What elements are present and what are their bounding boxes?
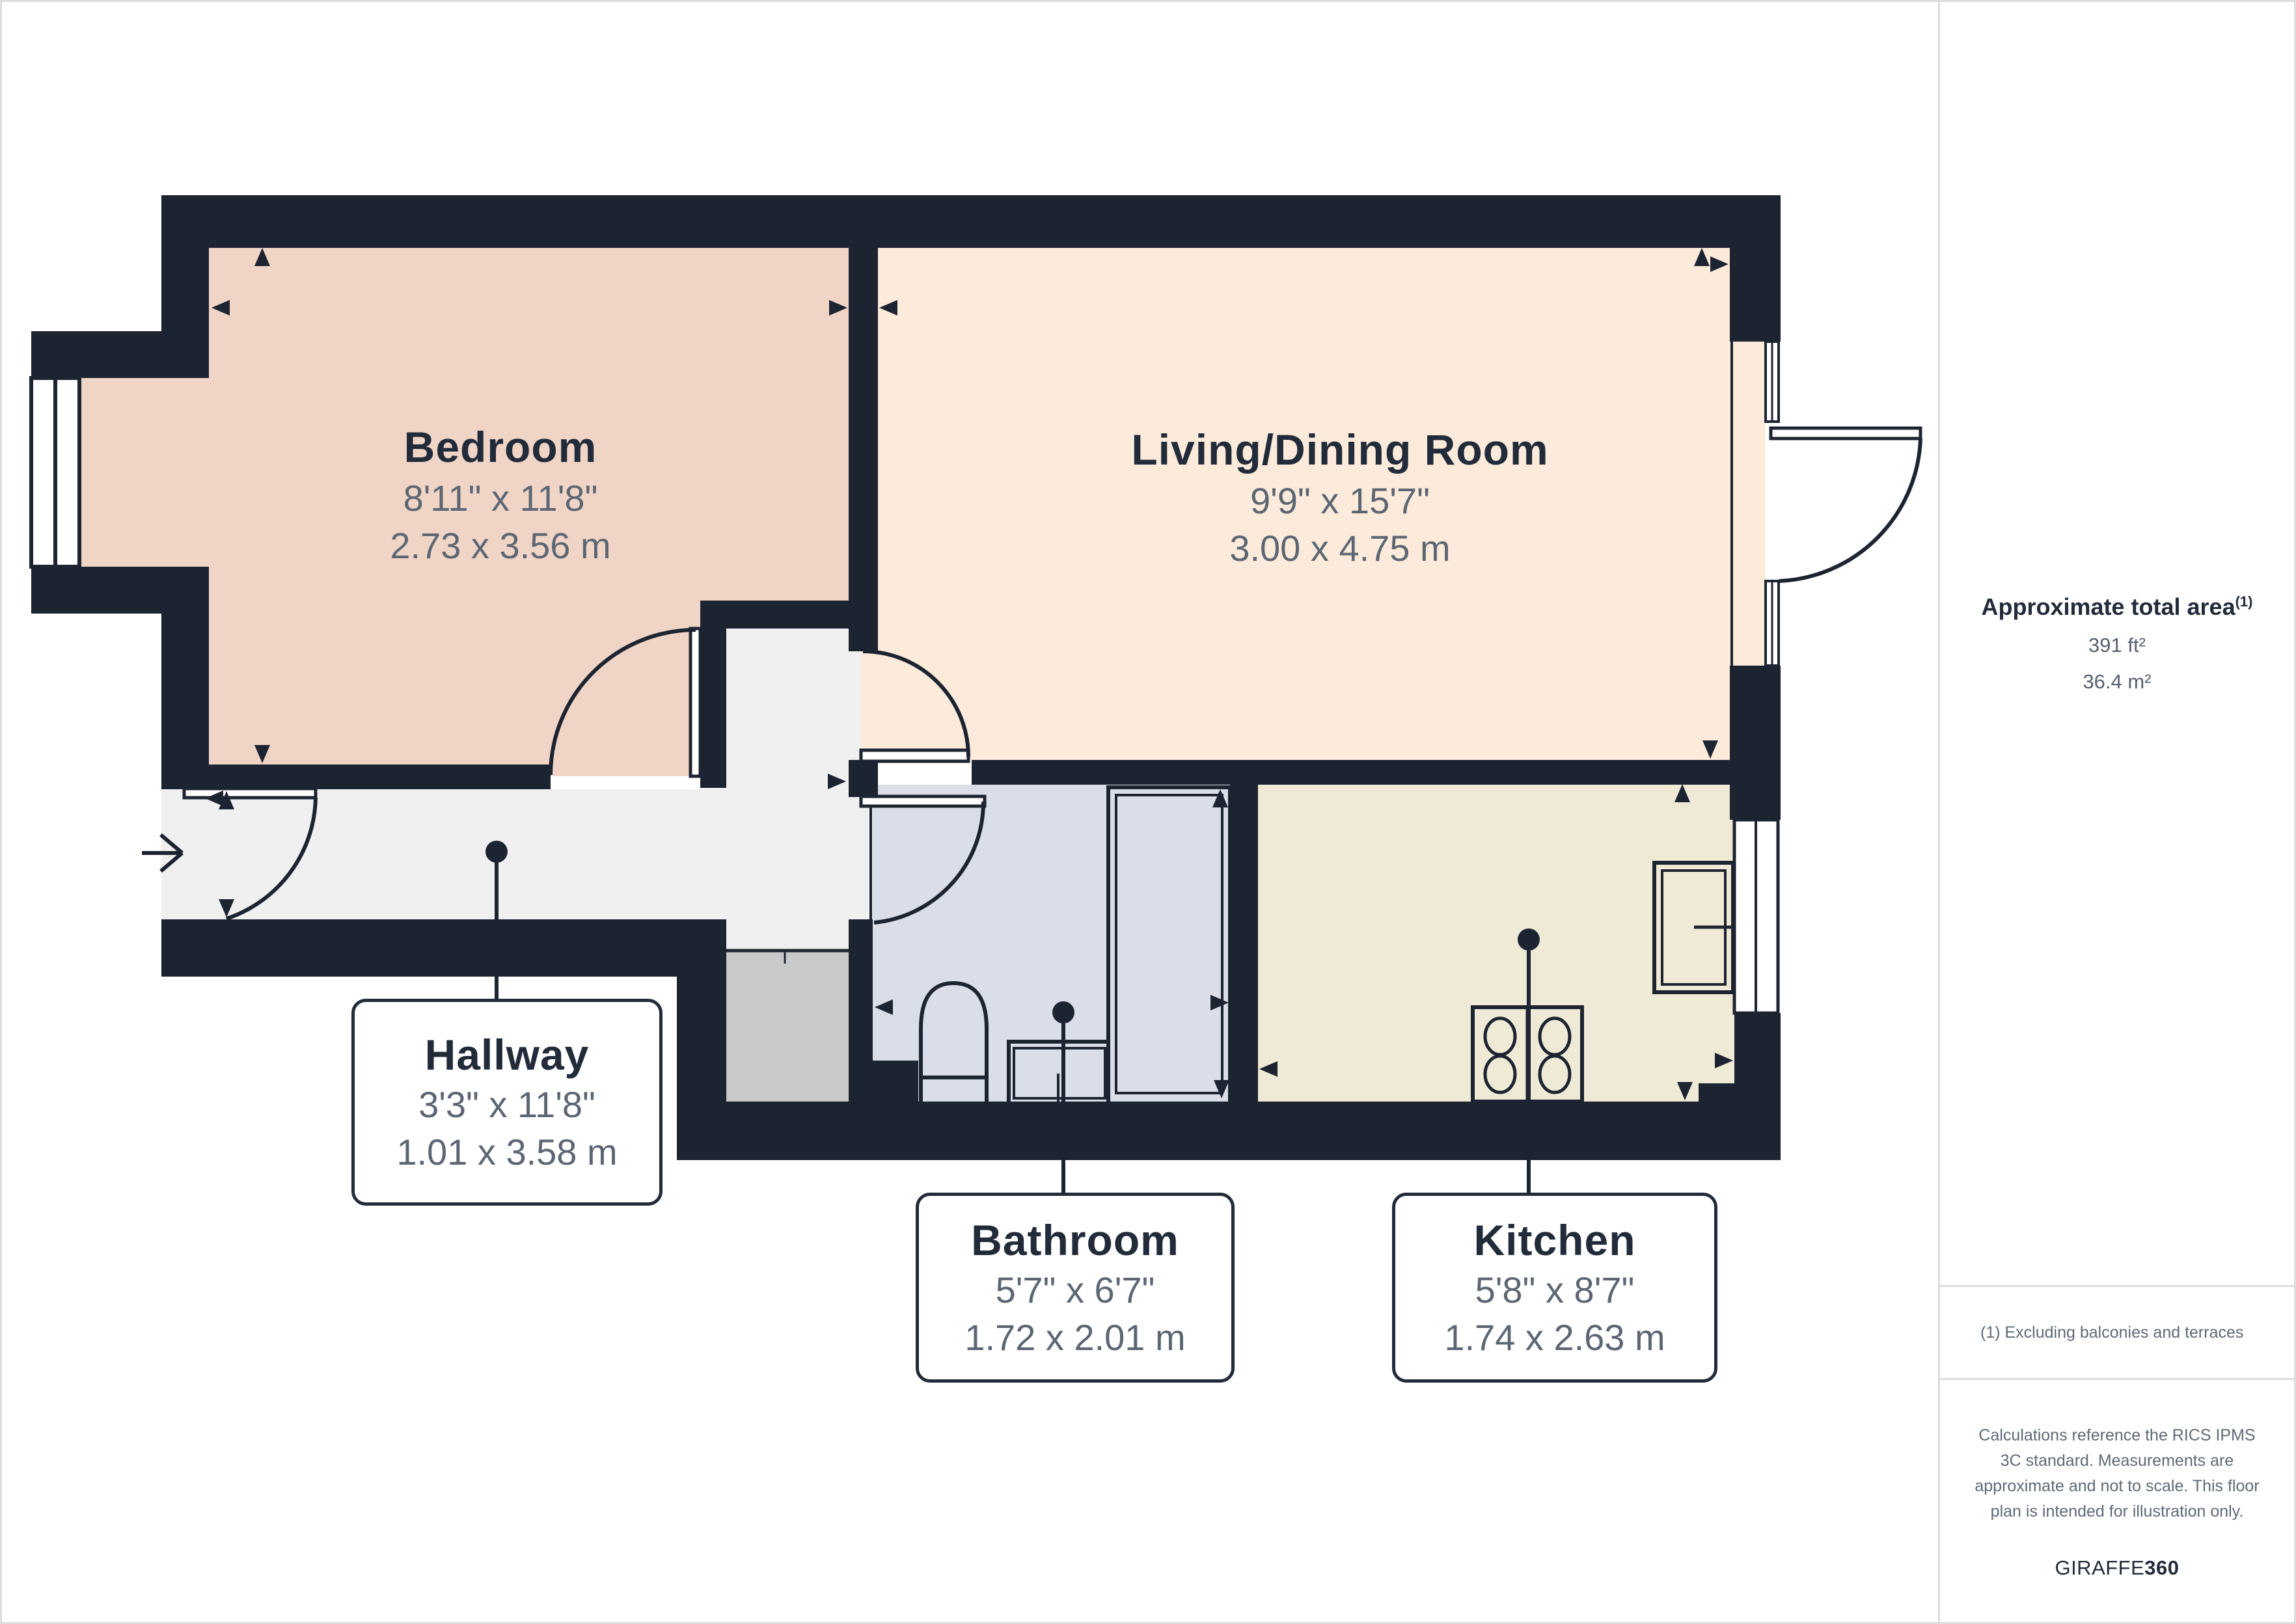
hallway-name: Hallway <box>425 1028 590 1082</box>
hallway-dim-imperial: 3'3" x 11'8" <box>418 1081 595 1129</box>
brand-secondary: 360 <box>2144 1556 2179 1579</box>
bathroom-dim-metric: 1.72 x 2.01 m <box>964 1314 1185 1362</box>
bathroom-dim-imperial: 5'7" x 6'7" <box>996 1267 1155 1314</box>
info-sidebar: Approximate total area(1) 391 ft² 36.4 m… <box>1938 2 2294 1622</box>
total-area-title: Approximate total area(1) <box>1981 593 2252 621</box>
hallway-dim-metric: 1.01 x 3.58 m <box>396 1129 617 1176</box>
bathroom-label-box: Bathroom 5'7" x 6'7" 1.72 x 2.01 m <box>916 1193 1235 1383</box>
total-area-footnote-marker: (1) <box>2235 593 2253 610</box>
footnote-section: (1) Excluding balconies and terraces <box>1940 1285 2294 1378</box>
room-floor-bathroom <box>873 785 1230 1105</box>
disclaimer-section: Calculations reference the RICS IPMS 3C … <box>1940 1378 2294 1622</box>
brand-logo: GIRAFFE360 <box>2055 1556 2179 1580</box>
total-area-section: Approximate total area(1) 391 ft² 36.4 m… <box>1940 2 2294 1285</box>
total-area-metric: 36.4 m² <box>2083 670 2151 694</box>
kitchen-name: Kitchen <box>1473 1213 1635 1267</box>
kitchen-label-box: Kitchen 5'8" x 8'7" 1.74 x 2.63 m <box>1392 1193 1717 1383</box>
balcony-door <box>1771 428 1920 581</box>
total-area-imperial: 391 ft² <box>2088 634 2146 657</box>
bay-window <box>31 378 79 567</box>
brand-primary: GIRAFFE <box>2055 1556 2144 1579</box>
disclaimer-text: Calculations reference the RICS IPMS 3C … <box>1970 1423 2264 1525</box>
hallway-label-box: Hallway 3'3" x 11'8" 1.01 x 3.58 m <box>351 999 663 1206</box>
kitchen-window <box>1734 820 1778 1013</box>
room-floor-closet <box>726 949 849 1102</box>
bathroom-name: Bathroom <box>971 1213 1179 1267</box>
kitchen-dim-imperial: 5'8" x 8'7" <box>1475 1267 1635 1314</box>
room-floor-living <box>861 239 1766 760</box>
kitchen-dim-metric: 1.74 x 2.63 m <box>1444 1314 1665 1362</box>
footnote-text: (1) Excluding balconies and terraces <box>1980 1323 2243 1342</box>
floorplan-page: Bedroom 8'11" x 11'8" 2.73 x 3.56 m Livi… <box>0 0 2296 1624</box>
total-area-label: Approximate total area <box>1981 593 2235 620</box>
